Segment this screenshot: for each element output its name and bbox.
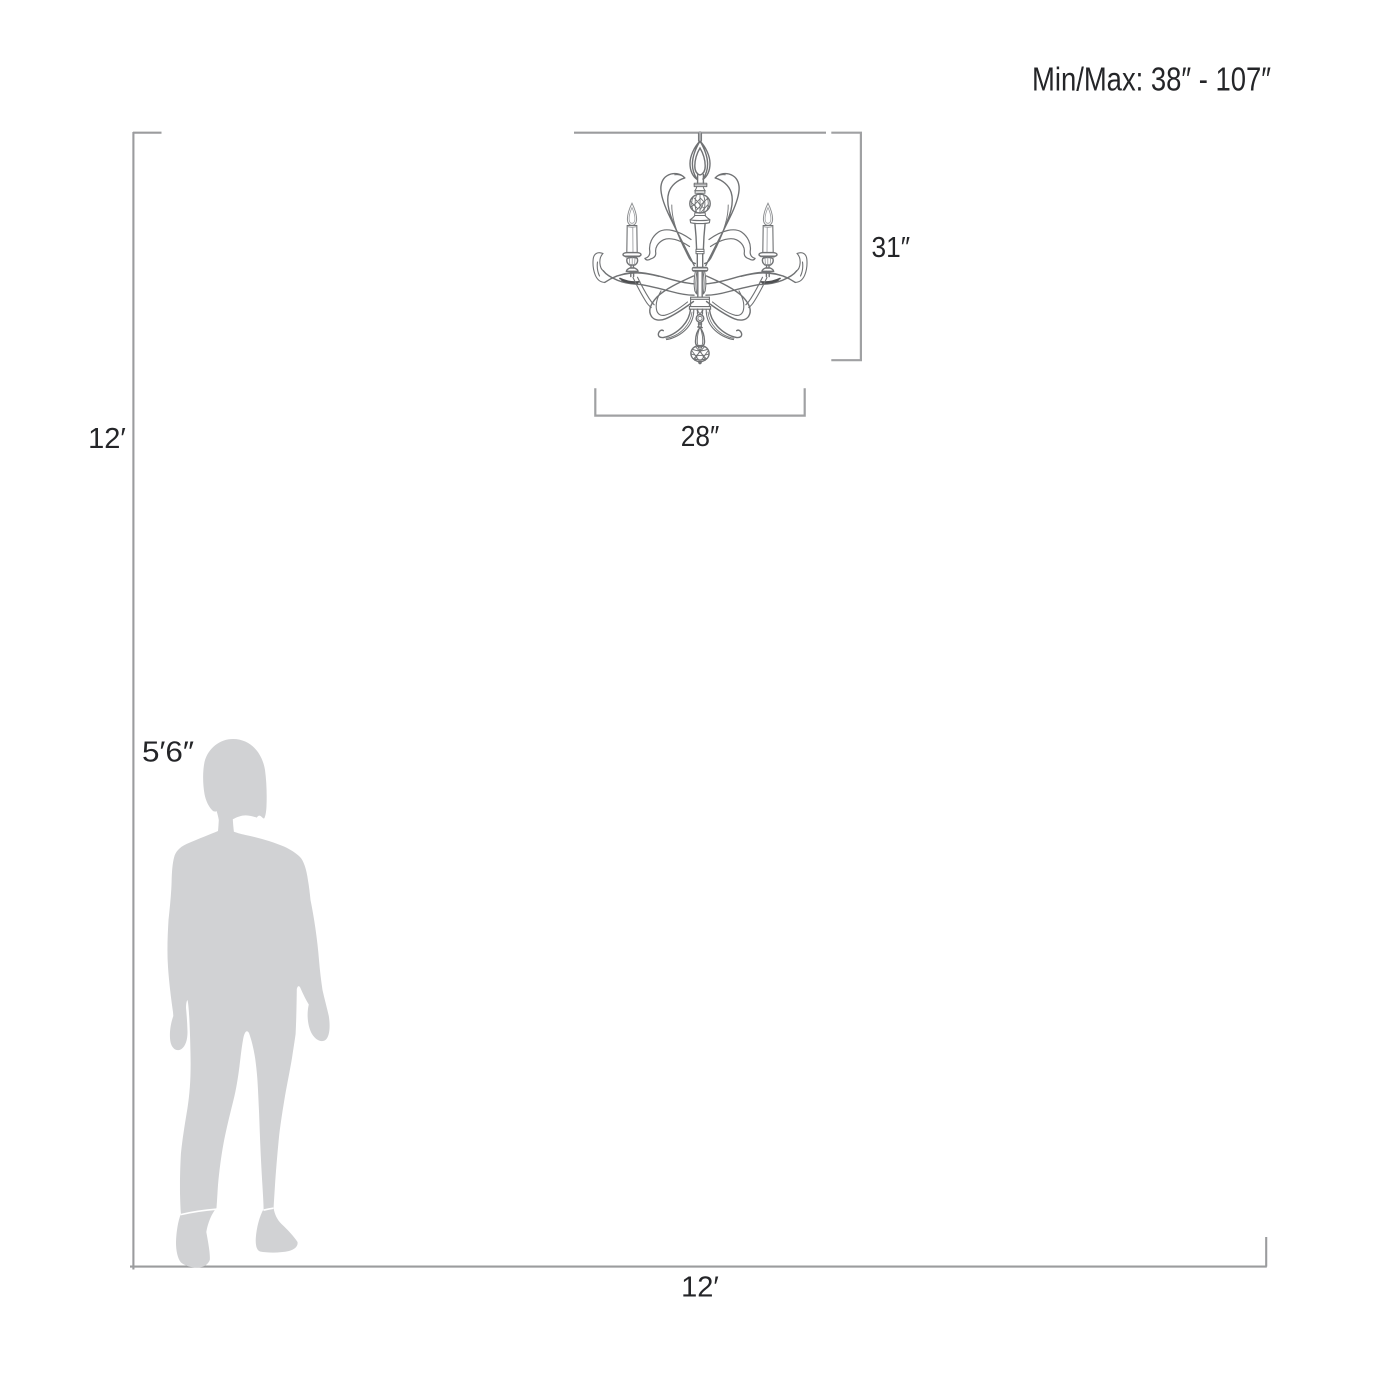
svg-text:28″: 28″ [681,421,720,453]
svg-text:5′6″: 5′6″ [142,737,194,769]
svg-text:31″: 31″ [872,232,911,264]
svg-text:12′: 12′ [681,1272,719,1304]
svg-text:12′: 12′ [88,423,126,455]
svg-text:Min/Max: 38″ - 107″: Min/Max: 38″ - 107″ [1032,61,1271,98]
